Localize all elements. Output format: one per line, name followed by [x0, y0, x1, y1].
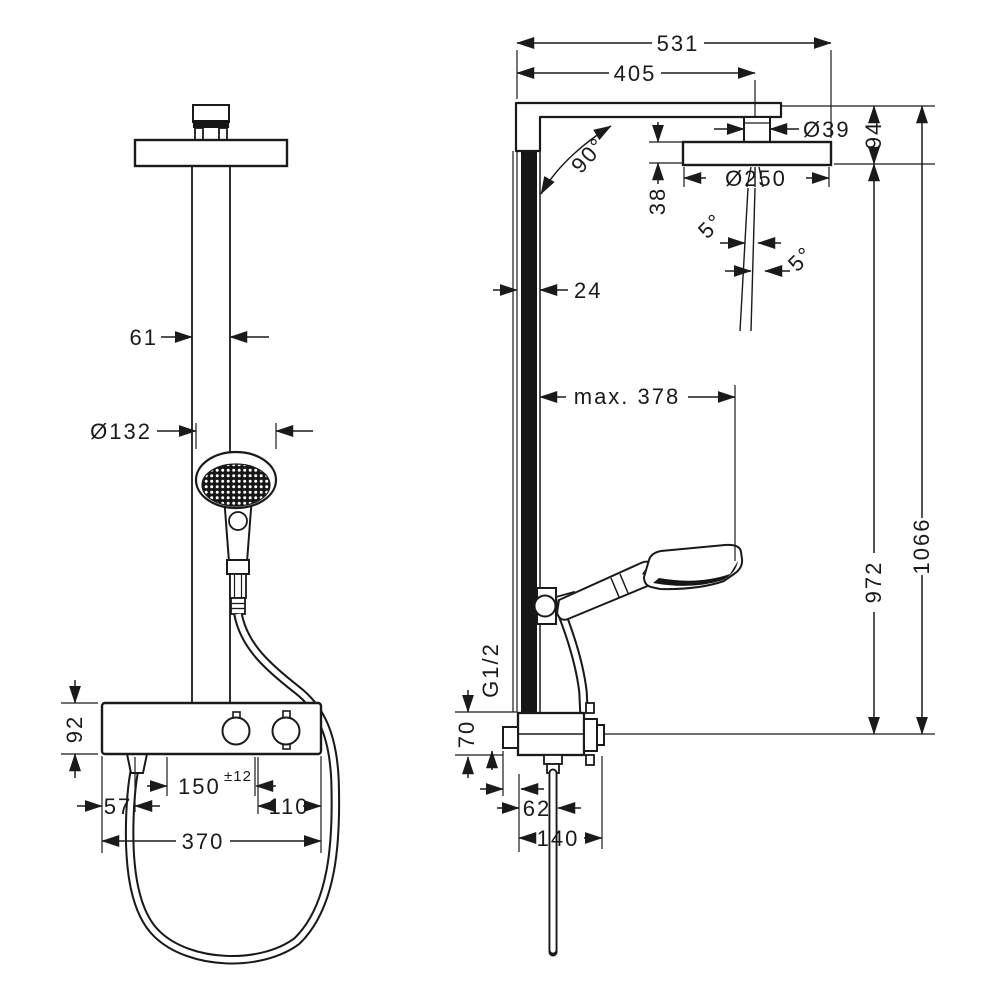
dim-valve-height: 70 [454, 720, 479, 778]
dim-head-thickness-label: 38 [645, 187, 670, 215]
dim-bar-depth: 24 [493, 278, 602, 303]
dim-total-height: 1066 [909, 106, 934, 734]
dim-spray-angle-left: 5° [693, 208, 781, 243]
dim-inlet-spacing: 150 ±12 [147, 757, 276, 799]
dim-offset-left: 57 [77, 756, 160, 853]
dim-thread-size-label: G1/2 [478, 642, 503, 698]
dim-tablet-width: 370 [102, 829, 321, 854]
dim-tablet-height-label: 92 [62, 715, 87, 743]
dim-tablet-height: 92 [61, 680, 98, 778]
dim-spray-angle-right: 5° [725, 241, 818, 276]
dim-spray-angle-left-label: 5° [693, 208, 728, 243]
dim-offset-right-label: 110 [268, 794, 309, 819]
dim-total-height-label: 1066 [909, 518, 934, 575]
dim-hand-shower-diameter-label: Ø132 [90, 419, 152, 444]
shower-hose-front [130, 614, 336, 960]
dim-valve-height-label: 70 [454, 720, 479, 748]
ceiling-connector [193, 105, 229, 141]
technical-drawing: 61 Ø132 92 150 ±12 [0, 0, 1000, 1000]
dim-offset-right: 110 [258, 756, 321, 853]
hand-shower-hose-side [562, 614, 584, 714]
dim-arm-length-label: 405 [614, 61, 657, 86]
dim-valve-depth-label: 140 [537, 826, 580, 851]
shower-pipe-front [192, 166, 230, 703]
dim-max-reach: max. 378 [540, 384, 735, 561]
spray-lines [740, 167, 763, 331]
front-view-figure: 61 Ø132 92 150 ±12 [61, 105, 335, 960]
dim-max-reach-label: max. 378 [574, 384, 681, 409]
dim-hose-offset-label: 62 [523, 796, 551, 821]
drawing-canvas: 61 Ø132 92 150 ±12 [0, 0, 1000, 1000]
hand-shower-side [557, 545, 742, 620]
dim-head-offset: 94 [861, 106, 886, 164]
dim-connector-diameter: Ø39 [714, 117, 851, 142]
hand-shower-spray-face [202, 464, 270, 506]
side-view-figure: 531 405 Ø39 94 972 [454, 31, 935, 952]
dim-bar-depth-label: 24 [574, 278, 602, 303]
dim-head-diameter-label: Ø250 [725, 166, 787, 191]
head-connector [744, 117, 770, 142]
dim-total-width-label: 531 [657, 31, 700, 56]
overhead-shower-side [683, 142, 831, 165]
dim-pipe-width-label: 61 [130, 325, 158, 350]
dim-arm-angle-label: 90° [566, 132, 611, 178]
dim-bar-height-label: 972 [861, 561, 886, 604]
dim-head-diameter: Ø250 [684, 166, 829, 191]
dim-wall-gap [480, 751, 544, 796]
overhead-shower-front [135, 140, 287, 166]
dim-total-width: 531 [517, 31, 831, 138]
dim-inlet-tolerance-label: ±12 [224, 768, 252, 785]
hose-outlet-front [127, 754, 147, 773]
dim-head-offset-label: 94 [861, 121, 886, 149]
dim-arm-angle: 90° [541, 126, 611, 194]
dim-tablet-width-label: 370 [182, 829, 225, 854]
dim-head-thickness: 38 [645, 122, 683, 215]
dim-thread-size: G1/2 [468, 642, 503, 770]
dim-offset-left-label: 57 [104, 794, 132, 819]
dim-connector-diameter-label: Ø39 [803, 117, 851, 142]
dim-bar-height: 972 [861, 164, 886, 734]
dim-inlet-spacing-label: 150 [178, 774, 221, 799]
wall-bar-side [513, 117, 540, 712]
